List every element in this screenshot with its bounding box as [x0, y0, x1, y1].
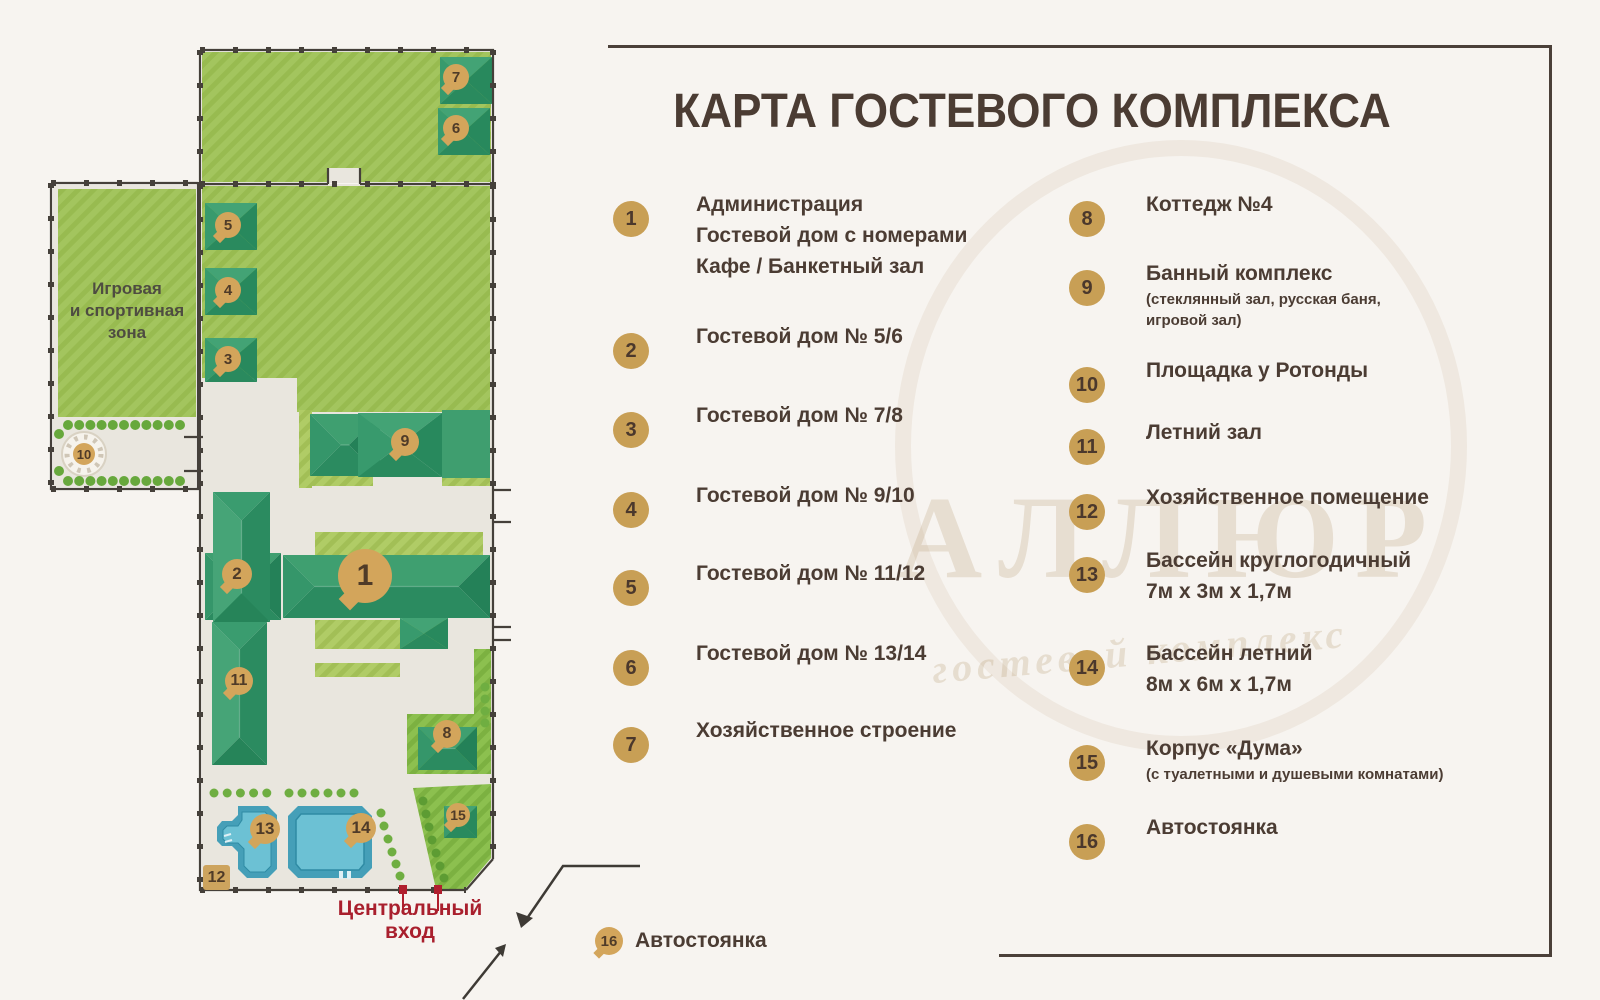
legend-item-5: 5Гостевой дом № 11/12	[613, 573, 925, 606]
legend-item-12: 12Хозяйственное помещение	[1069, 497, 1429, 530]
legend-num-3: 3	[613, 412, 649, 448]
legend-text-11: Летний зал	[1146, 417, 1262, 448]
legend-line: 7м х 3м х 1,7м	[1146, 576, 1411, 607]
legend-num-12: 12	[1069, 494, 1105, 530]
legend-line: Коттедж №4	[1146, 189, 1273, 220]
marker-9: 9	[391, 428, 419, 456]
legend-line: 8м х 6м х 1,7м	[1146, 669, 1313, 700]
legend-text-10: Площадка у Ротонды	[1146, 355, 1368, 386]
legend-line: Администрация	[696, 189, 967, 220]
legend-text-15: Корпус «Дума»(с туалетными и душевыми ко…	[1146, 733, 1443, 785]
legend-num-14: 14	[1069, 650, 1105, 686]
legend-item-7: 7Хозяйственное строение	[613, 730, 956, 763]
legend-line: Гостевой дом с номерами	[696, 220, 967, 251]
marker-13: 13	[250, 814, 280, 844]
legend-num-8: 8	[1069, 201, 1105, 237]
legend-note: (с туалетными и душевыми комнатами)	[1146, 765, 1443, 785]
legend-num-15: 15	[1069, 745, 1105, 781]
legend-num-16: 16	[1069, 824, 1105, 860]
legend-line: Корпус «Дума»	[1146, 733, 1443, 764]
legend-text-4: Гостевой дом № 9/10	[696, 480, 915, 511]
legend-line: Автостоянка	[1146, 812, 1278, 843]
legend-line: Хозяйственное строение	[696, 715, 956, 746]
legend-item-8: 8Коттедж №4	[1069, 204, 1273, 237]
legend-line: Гостевой дом № 7/8	[696, 400, 903, 431]
legend-num-9: 9	[1069, 270, 1105, 306]
legend-text-3: Гостевой дом № 7/8	[696, 400, 903, 431]
legend-text-16: Автостоянка	[1146, 812, 1278, 843]
legend-text-13: Бассейн круглогодичный7м х 3м х 1,7м	[1146, 545, 1411, 607]
legend-item-13: 13Бассейн круглогодичный7м х 3м х 1,7м	[1069, 560, 1411, 607]
marker-16: 16	[595, 927, 623, 955]
legend-item-9: 9Банный комплекс(стеклянный зал, русская…	[1069, 273, 1381, 331]
marker-15: 15	[446, 803, 470, 827]
legend-line: Гостевой дом № 11/12	[696, 558, 925, 589]
legend-text-8: Коттедж №4	[1146, 189, 1273, 220]
legend-text-14: Бассейн летний8м х 6м х 1,7м	[1146, 638, 1313, 700]
legend-text-6: Гостевой дом № 13/14	[696, 638, 926, 669]
legend-note: игровой зал)	[1146, 311, 1381, 331]
legend-num-10: 10	[1069, 367, 1105, 403]
legend-line: Бассейн круглогодичный	[1146, 545, 1411, 576]
legend-line: Летний зал	[1146, 417, 1262, 448]
legend-text-5: Гостевой дом № 11/12	[696, 558, 925, 589]
legend-item-15: 15Корпус «Дума»(с туалетными и душевыми …	[1069, 748, 1443, 785]
legend-text-7: Хозяйственное строение	[696, 715, 956, 746]
legend-line: Банный комплекс	[1146, 258, 1381, 289]
marker-6: 6	[443, 115, 469, 141]
poster-canvas: АЛЛЮР гостевой комплекс КАРТА ГОСТЕВОГО …	[0, 0, 1600, 1000]
legend-num-4: 4	[613, 492, 649, 528]
legend-line: Бассейн летний	[1146, 638, 1313, 669]
marker-5: 5	[215, 212, 241, 238]
legend-num-11: 11	[1069, 429, 1105, 465]
legend-num-2: 2	[613, 333, 649, 369]
marker-4: 4	[215, 277, 241, 303]
legend-item-3: 3Гостевой дом № 7/8	[613, 415, 903, 448]
legend-frame-bottom	[999, 954, 1552, 957]
marker-1: 1	[338, 549, 392, 603]
legend-note: (стеклянный зал, русская баня,	[1146, 290, 1381, 310]
marker-3: 3	[215, 346, 241, 372]
legend-item-2: 2Гостевой дом № 5/6	[613, 336, 903, 369]
legend-num-13: 13	[1069, 557, 1105, 593]
legend-line: Кафе / Банкетный зал	[696, 251, 967, 282]
legend-line: Площадка у Ротонды	[1146, 355, 1368, 386]
marker-12-badge: 12	[203, 865, 230, 890]
sport-zone-label: Игровая и спортивная зона	[54, 278, 200, 344]
legend-item-16: 16Автостоянка	[1069, 827, 1278, 860]
site-map	[0, 0, 640, 1000]
legend-line: Гостевой дом № 9/10	[696, 480, 915, 511]
parking-label: Автостоянка	[635, 929, 767, 953]
legend-line: Гостевой дом № 13/14	[696, 638, 926, 669]
legend-text-2: Гостевой дом № 5/6	[696, 321, 903, 352]
legend-text-9: Банный комплекс(стеклянный зал, русская …	[1146, 258, 1381, 331]
marker-8: 8	[433, 720, 461, 748]
marker-11: 11	[225, 667, 253, 695]
legend-frame-right	[1549, 45, 1552, 957]
legend-item-10: 10Площадка у Ротонды	[1069, 370, 1368, 403]
page-title: КАРТА ГОСТЕВОГО КОМПЛЕКСА	[642, 84, 1422, 139]
legend-num-5: 5	[613, 570, 649, 606]
legend-item-11: 11Летний зал	[1069, 432, 1262, 465]
legend-text-12: Хозяйственное помещение	[1146, 482, 1429, 513]
legend-item-4: 4Гостевой дом № 9/10	[613, 495, 915, 528]
legend-num-6: 6	[613, 650, 649, 686]
marker-7: 7	[443, 64, 469, 90]
marker-14: 14	[346, 813, 376, 843]
legend-line: Хозяйственное помещение	[1146, 482, 1429, 513]
legend-item-1: 1АдминистрацияГостевой дом с номерамиКаф…	[613, 204, 967, 282]
legend-text-1: АдминистрацияГостевой дом с номерамиКафе…	[696, 189, 967, 282]
legend-line: Гостевой дом № 5/6	[696, 321, 903, 352]
legend-item-14: 14Бассейн летний8м х 6м х 1,7м	[1069, 653, 1313, 700]
legend-frame-top	[608, 45, 1552, 48]
legend-item-6: 6Гостевой дом № 13/14	[613, 653, 926, 686]
parking-legend: 16 Автостоянка	[595, 927, 767, 955]
marker-2: 2	[222, 559, 252, 589]
central-entrance-label: Центральный вход	[328, 897, 492, 943]
legend-num-7: 7	[613, 727, 649, 763]
marker-10: 10	[73, 443, 95, 465]
legend-num-1: 1	[613, 201, 649, 237]
